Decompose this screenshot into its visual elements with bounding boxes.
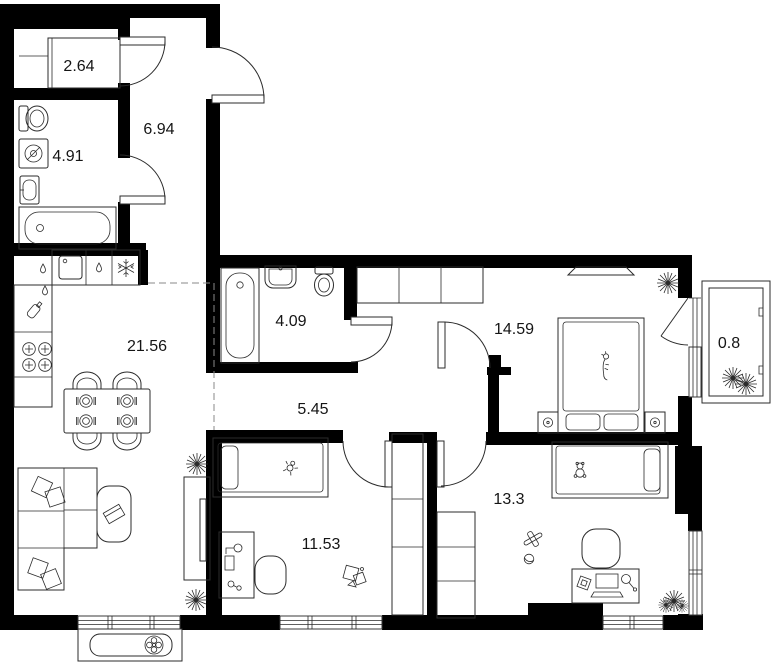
room-labels: 2.64 6.94 4.91 21.56 4.09 5.45 14.59 0.8… [52,58,740,553]
door-bathroom[interactable] [351,317,392,362]
kids-room-1-furniture [213,434,423,615]
desk [572,569,639,603]
magnifier-icon [622,575,631,584]
coffee-table [97,486,131,542]
corner-sofa [18,468,97,590]
door-bedroom[interactable] [438,322,490,368]
dining-table [64,389,150,433]
window-bedroom-balcony [689,298,701,397]
nightstand-right [645,412,665,433]
toy-plane-icon [520,527,545,551]
toilet-icon [315,267,334,296]
tv-icon [200,499,206,561]
kids-room-2-furniture [437,442,689,618]
plant-icon [186,453,208,475]
label-balcony: 0.8 [718,335,740,352]
desk [219,532,254,598]
stove-burners [23,343,52,372]
toys-icon [343,565,366,587]
door-storage[interactable] [120,37,165,86]
label-corridor: 5.45 [297,401,328,418]
plant-icon [722,367,744,389]
bottle-icon [26,300,44,319]
kitchen-zone-divider [148,283,214,430]
door-kids-room-1[interactable] [343,441,392,487]
living-furniture [18,453,210,611]
plant-icon [657,272,679,294]
drop-icon [43,286,48,295]
entry-door[interactable] [212,47,264,103]
bathtub-icon [221,268,259,363]
floor-plan-page: 2.64 6.94 4.91 21.56 4.09 5.45 14.59 0.8… [0,0,777,668]
plant-icon [185,589,207,611]
toilet-icon [19,106,48,131]
label-bathroom-small: 4.91 [52,148,83,165]
label-bathroom: 4.09 [275,313,306,330]
kitchen-counter-left [14,285,52,407]
label-kids-room-1: 11.53 [302,536,341,553]
door-balcony[interactable] [661,298,688,345]
window-kids-room-2 [603,616,663,629]
kitchen-sink-icon [59,256,82,279]
window-living-room [78,616,180,629]
washing-machine-icon [19,139,48,168]
drop-icon [41,264,46,273]
single-bed [552,442,668,498]
nightstand-left [538,412,558,433]
desk-chair [255,556,286,594]
teddy-bear-icon [574,462,586,477]
outdoor-ac-unit [78,629,182,661]
wardrobe [437,512,475,618]
plant-icon [658,590,688,613]
label-bedroom: 14.59 [494,321,534,338]
label-kitchen-living: 21.56 [127,338,167,355]
label-hallway: 6.94 [143,121,174,138]
ball-line [525,558,534,562]
bedroom-furniture [538,267,679,433]
sink-icon [265,266,296,288]
window-kids-room-1 [280,616,382,629]
wardrobe [392,434,423,615]
label-storage: 2.64 [63,58,94,75]
dresser-icon [568,267,634,275]
toy-icon [281,458,300,477]
floor-plan: 2.64 6.94 4.91 21.56 4.09 5.45 14.59 0.8… [0,0,777,668]
hand-sink-icon [20,176,39,204]
fridge-snowflake-icon [118,259,134,277]
desk-chair [582,529,620,568]
double-bed [558,318,644,433]
bathtub-icon [19,207,116,249]
dishwasher-drop-icon [97,263,102,272]
window-kids-room-2-side [689,531,702,615]
cat-icon [592,351,619,380]
single-bed [213,438,328,497]
bathroom-small-fixtures [19,106,116,249]
door-bathroom-small[interactable] [120,155,165,204]
corridor-wardrobe [357,267,483,303]
label-kids-room-2: 13.3 [493,491,524,508]
door-kids-room-2[interactable] [437,441,486,487]
